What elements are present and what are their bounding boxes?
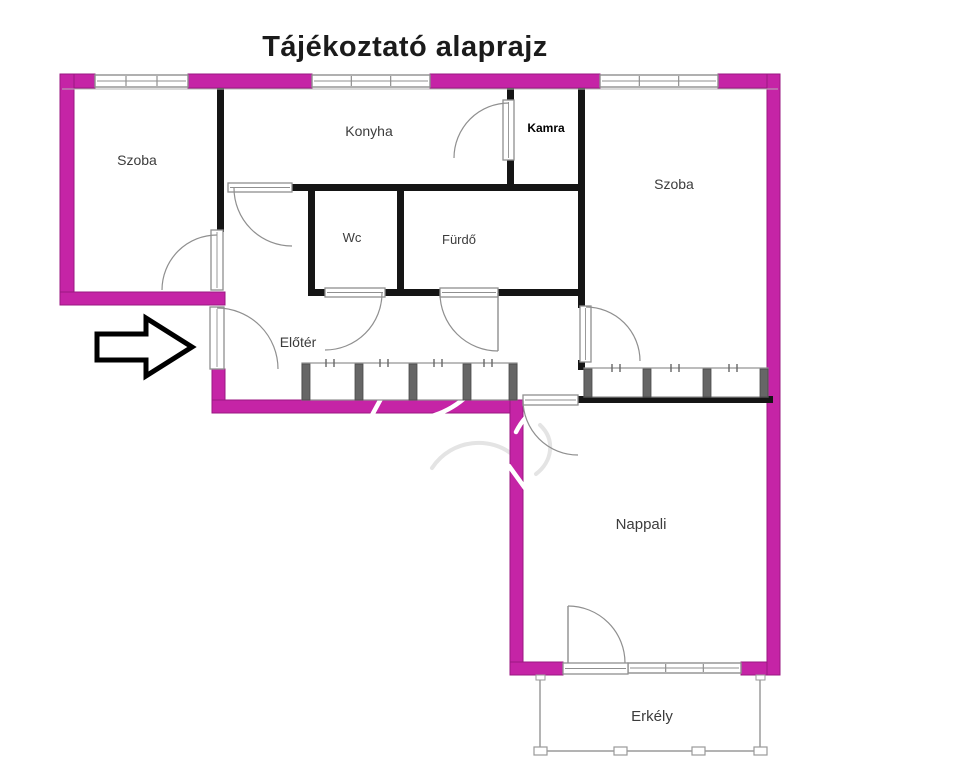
door-frame (440, 288, 498, 297)
built-in-wardrobes (302, 359, 768, 400)
room-label-nappali: Nappali (616, 516, 667, 533)
interior-wall-segment (578, 88, 585, 292)
door-frame (228, 183, 292, 192)
interior-wall-segment (507, 158, 514, 191)
balcony-post (614, 747, 627, 755)
wardrobe-post (409, 364, 417, 400)
room-label-eloter: Előtér (280, 334, 317, 350)
watermark-stroke (536, 425, 550, 474)
wardrobe-post (760, 369, 768, 397)
watermark-stroke (432, 443, 514, 468)
balcony-post (534, 747, 547, 755)
door-swing-kamra (454, 103, 509, 158)
floor-plan-image: Tájékoztató alaprajz Szoba Konyha Kamra … (0, 0, 957, 779)
exterior-wall-segment (510, 400, 523, 675)
built-in-wardrobe (302, 359, 517, 400)
door-swing-entrance (217, 308, 278, 369)
interior-wall-segment (217, 88, 224, 232)
window (600, 75, 718, 87)
door-swing-szoba-right (586, 307, 640, 361)
door-frame (580, 306, 591, 362)
arrow-right-icon (97, 318, 192, 376)
wardrobe-post (463, 364, 471, 400)
wardrobe-body (584, 368, 768, 397)
door-swing-balcony (568, 606, 625, 663)
exterior-wall-segment (212, 369, 225, 400)
watermark-under-layer (432, 425, 550, 474)
door-frame (523, 395, 578, 405)
door-frame (563, 663, 628, 674)
wardrobe-post (302, 364, 310, 400)
door-frame (503, 100, 514, 160)
interior-wall-segment (385, 289, 440, 296)
floor-plan-canvas: Tájékoztató alaprajz Szoba Konyha Kamra … (0, 0, 957, 779)
exterior-wall-segment (767, 74, 780, 675)
wardrobe-post (643, 369, 651, 397)
room-label-erkely: Erkély (631, 708, 673, 725)
wardrobe-post (509, 364, 517, 400)
interior-wall-segment (397, 191, 404, 296)
door-frame (210, 307, 224, 369)
door-swing-wc (325, 293, 382, 350)
entrance-marker (97, 318, 192, 376)
balcony-post (754, 747, 767, 755)
exterior-wall-segment (188, 74, 312, 88)
door-swing-szoba-left (162, 235, 217, 290)
exterior-wall-segment (212, 400, 515, 413)
wardrobe-post (584, 369, 592, 397)
room-label-szoba-left: Szoba (117, 152, 157, 168)
exterior-wall-segment (430, 74, 600, 88)
room-label-furdo: Fürdő (442, 232, 476, 247)
balcony-anchor (756, 675, 765, 680)
exterior-wall-segment (60, 292, 225, 305)
room-label-wc: Wc (343, 230, 362, 245)
page-title: Tájékoztató alaprajz (262, 31, 548, 63)
door-frame (211, 230, 223, 290)
room-label-szoba-right: Szoba (654, 176, 694, 192)
room-label-kamra: Kamra (527, 121, 565, 135)
door-frame (325, 288, 385, 297)
room-label-konyha: Konyha (345, 123, 393, 139)
exterior-wall-segment (510, 662, 563, 675)
wardrobe-post (703, 369, 711, 397)
door-swing-konyha (234, 188, 292, 246)
interior-wall-segment (292, 184, 583, 191)
window (628, 663, 741, 673)
window (95, 75, 188, 87)
balcony-anchor (536, 675, 545, 680)
interior-wall-segment (308, 191, 315, 296)
wardrobe-post (355, 364, 363, 400)
exterior-wall-segment (60, 74, 74, 305)
door-swing-furdo (440, 293, 498, 351)
interior-wall-segment (308, 289, 325, 296)
balcony-post (692, 747, 705, 755)
window (312, 75, 430, 87)
built-in-wardrobe (584, 364, 768, 397)
interior-wall-segment (498, 289, 583, 296)
